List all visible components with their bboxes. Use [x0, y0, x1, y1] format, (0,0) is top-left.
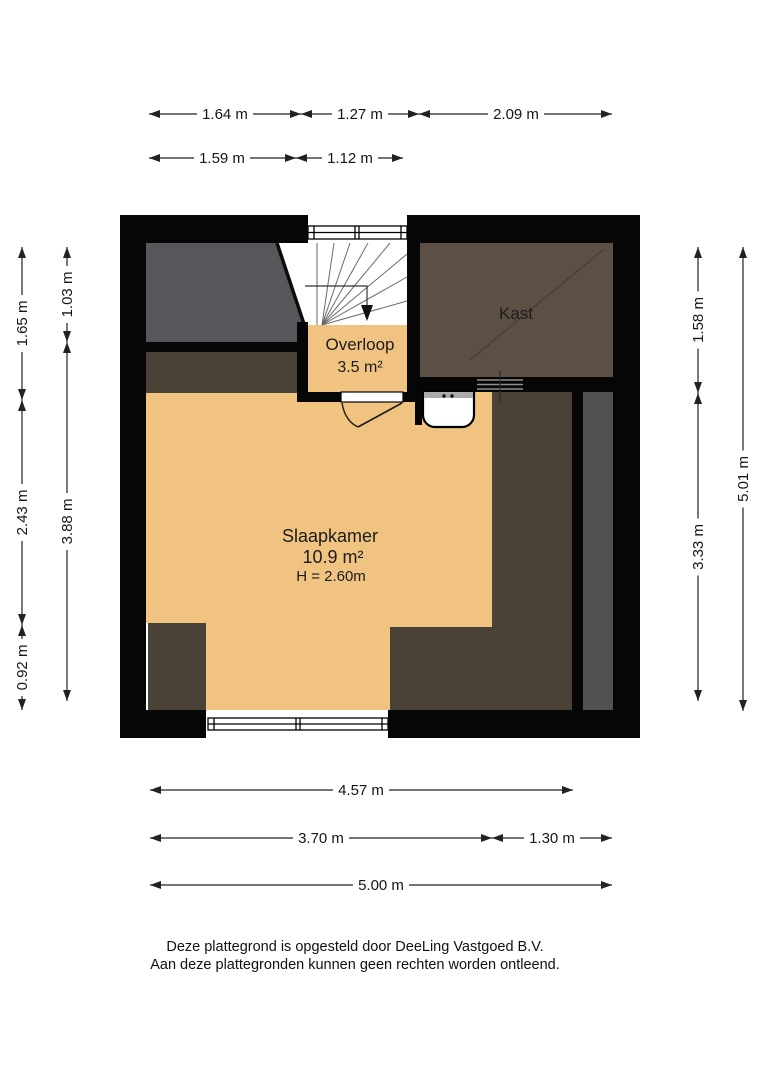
dimension-label: 1.59 m	[199, 150, 245, 167]
dimension-segment: 1.59 m	[149, 148, 296, 168]
wall-overloop-bottom-left	[297, 392, 341, 402]
faucet-icon	[442, 394, 445, 397]
dimension-segment: 4.57 m	[150, 780, 573, 800]
kast-label: Kast	[499, 304, 533, 323]
wall-left	[120, 215, 146, 738]
dimension-label: 1.64 m	[202, 106, 248, 123]
slaapkamer-label: Slaapkamer	[282, 526, 378, 546]
dimension-segment: 1.65 m	[12, 247, 32, 400]
dimension-segment: 3.33 m	[688, 393, 708, 701]
low-headroom-strip-top	[146, 352, 298, 393]
overloop-area: 3.5 m²	[337, 359, 383, 376]
dimension-segment: 2.43 m	[12, 400, 32, 625]
dimension-segment: 5.00 m	[150, 875, 612, 895]
dimension-segment: 1.30 m	[492, 828, 612, 848]
sink	[423, 391, 474, 427]
dimension-label: 1.65 m	[14, 301, 31, 347]
dimension-segment: 1.58 m	[688, 247, 708, 393]
dimension-label: 1.12 m	[327, 150, 373, 167]
wall-top-left	[120, 215, 308, 243]
dimension-label: 2.09 m	[493, 106, 539, 123]
footer-line-2: Aan deze plattegronden kunnen geen recht…	[150, 957, 560, 973]
dimension-segment: 1.64 m	[149, 104, 301, 124]
floor-plan-canvas: Overloop 3.5 m² Kast Slaapkamer 10.9 m² …	[0, 0, 764, 1080]
dimension-segment: 3.88 m	[57, 342, 77, 701]
dimension-label: 3.70 m	[298, 830, 344, 847]
dimension-label: 5.01 m	[735, 456, 752, 502]
faucet-icon	[450, 394, 453, 397]
slaapkamer-ceiling-height: H = 2.60m	[296, 568, 366, 585]
dimension-label: 1.30 m	[529, 830, 575, 847]
wall-shaft-divider	[572, 380, 583, 710]
floor-areas	[146, 243, 613, 710]
dimension-label: 1.27 m	[337, 106, 383, 123]
footer-line-1: Deze plattegrond is opgesteld door DeeLi…	[166, 939, 543, 955]
dimension-segment: 0.92 m	[12, 625, 32, 710]
window-top	[308, 226, 407, 239]
dimension-segment: 3.70 m	[150, 828, 492, 848]
wall-top-right	[407, 215, 640, 243]
dimension-label: 4.57 m	[338, 782, 384, 799]
dimension-label: 5.00 m	[358, 877, 404, 894]
overloop-label: Overloop	[326, 335, 395, 354]
door-opening	[341, 392, 403, 402]
wall-overloop-left	[297, 322, 308, 402]
window-bottom	[208, 718, 388, 730]
dimension-segment: 2.09 m	[419, 104, 612, 124]
knee-wall-strip	[146, 342, 303, 352]
dimension-label: 3.88 m	[59, 499, 76, 545]
low-headroom-bottom-left	[148, 623, 206, 710]
wall-bottom-left	[120, 710, 206, 738]
dimension-segment: 1.27 m	[301, 104, 419, 124]
shaft-gray-strip	[583, 390, 613, 710]
dimension-segment: 1.03 m	[57, 247, 77, 342]
wall-bottom-right	[388, 710, 640, 738]
wall-right	[613, 215, 640, 738]
footer-disclaimer: Deze plattegrond is opgesteld door DeeLi…	[150, 939, 560, 973]
dimension-segment: 5.01 m	[733, 247, 753, 711]
dimension-label: 3.33 m	[690, 524, 707, 570]
dimension-label: 1.03 m	[59, 272, 76, 318]
dimension-label: 2.43 m	[14, 490, 31, 536]
wall-sink-stub	[415, 392, 422, 425]
dimension-segment: 1.12 m	[296, 148, 403, 168]
dimension-label: 1.58 m	[690, 297, 707, 343]
slaapkamer-area: 10.9 m²	[302, 547, 363, 567]
dimension-label: 0.92 m	[14, 645, 31, 691]
